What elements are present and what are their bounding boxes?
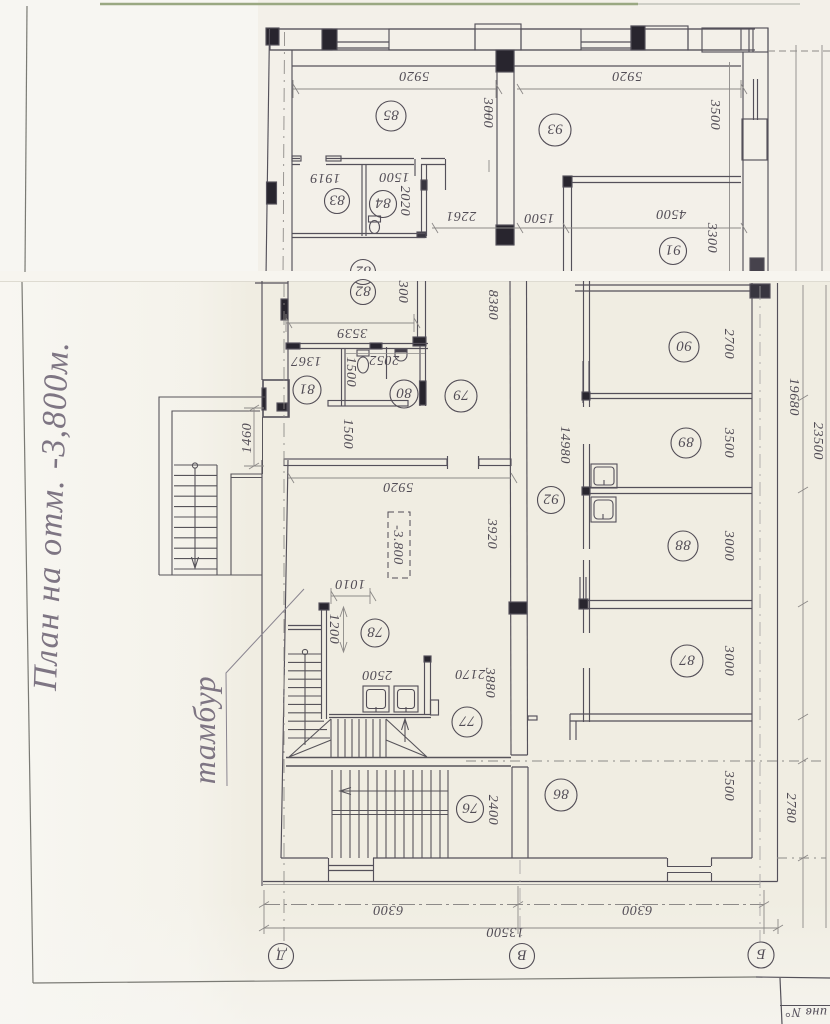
- svg-text:3500: 3500: [721, 770, 736, 801]
- svg-text:2020: 2020: [397, 186, 412, 216]
- svg-text:3000: 3000: [480, 97, 495, 128]
- svg-text:2700: 2700: [721, 329, 736, 359]
- svg-text:-3.800: -3.800: [390, 525, 405, 565]
- svg-text:4500: 4500: [656, 206, 686, 221]
- svg-text:93: 93: [547, 121, 563, 137]
- svg-text:3539: 3539: [337, 325, 368, 340]
- svg-text:5920: 5920: [383, 479, 413, 494]
- svg-text:5920: 5920: [612, 68, 642, 83]
- svg-text:76: 76: [462, 800, 478, 816]
- svg-text:77: 77: [458, 713, 475, 729]
- svg-text:5920: 5920: [399, 68, 429, 83]
- svg-text:87: 87: [678, 652, 695, 668]
- svg-text:84: 84: [375, 195, 391, 211]
- svg-text:91: 91: [665, 242, 681, 258]
- svg-text:3500: 3500: [707, 99, 722, 130]
- svg-text:2400: 2400: [485, 795, 500, 825]
- svg-text:2170: 2170: [455, 666, 485, 681]
- svg-text:инв N°: инв N°: [785, 1004, 827, 1019]
- svg-text:14980: 14980: [557, 426, 572, 464]
- svg-text:300: 300: [395, 280, 410, 304]
- svg-text:3000: 3000: [721, 645, 736, 676]
- svg-text:6300: 6300: [373, 902, 403, 917]
- svg-text:2780: 2780: [783, 793, 798, 823]
- svg-text:1500: 1500: [379, 169, 409, 184]
- svg-text:1919: 1919: [310, 170, 340, 185]
- svg-text:3500: 3500: [721, 427, 736, 458]
- svg-text:8380: 8380: [485, 290, 500, 320]
- svg-text:1010: 1010: [335, 576, 365, 591]
- svg-text:85: 85: [383, 107, 399, 123]
- svg-text:80: 80: [396, 385, 412, 401]
- svg-text:тамбур: тамбур: [186, 676, 222, 784]
- svg-text:2261: 2261: [446, 208, 476, 223]
- svg-text:1200: 1200: [326, 614, 341, 644]
- svg-text:3880: 3880: [482, 667, 497, 698]
- svg-text:1367: 1367: [290, 353, 321, 368]
- svg-text:79: 79: [453, 387, 469, 403]
- svg-text:6300: 6300: [622, 902, 652, 917]
- svg-text:1500: 1500: [343, 357, 358, 387]
- svg-text:Б: Б: [756, 946, 766, 962]
- svg-text:82: 82: [355, 283, 371, 299]
- svg-text:3000: 3000: [721, 530, 736, 561]
- svg-text:19680: 19680: [786, 378, 801, 416]
- svg-text:1460: 1460: [240, 423, 255, 453]
- svg-text:1500: 1500: [340, 419, 355, 449]
- svg-text:90: 90: [676, 338, 692, 354]
- svg-text:88: 88: [675, 537, 691, 553]
- svg-text:78: 78: [367, 624, 383, 640]
- svg-text:1500: 1500: [524, 210, 554, 225]
- svg-text:3300: 3300: [704, 222, 719, 253]
- svg-text:В: В: [517, 947, 527, 963]
- svg-text:92: 92: [543, 491, 559, 507]
- svg-text:89: 89: [678, 434, 694, 450]
- svg-text:23500: 23500: [810, 422, 825, 460]
- svg-text:86: 86: [553, 786, 569, 802]
- svg-text:83: 83: [329, 192, 345, 208]
- svg-text:81: 81: [299, 381, 315, 397]
- svg-text:13500: 13500: [486, 924, 524, 939]
- svg-text:3920: 3920: [484, 518, 499, 549]
- svg-text:Д: Д: [275, 947, 288, 963]
- svg-text:2052: 2052: [369, 352, 399, 367]
- svg-text:2500: 2500: [362, 667, 392, 682]
